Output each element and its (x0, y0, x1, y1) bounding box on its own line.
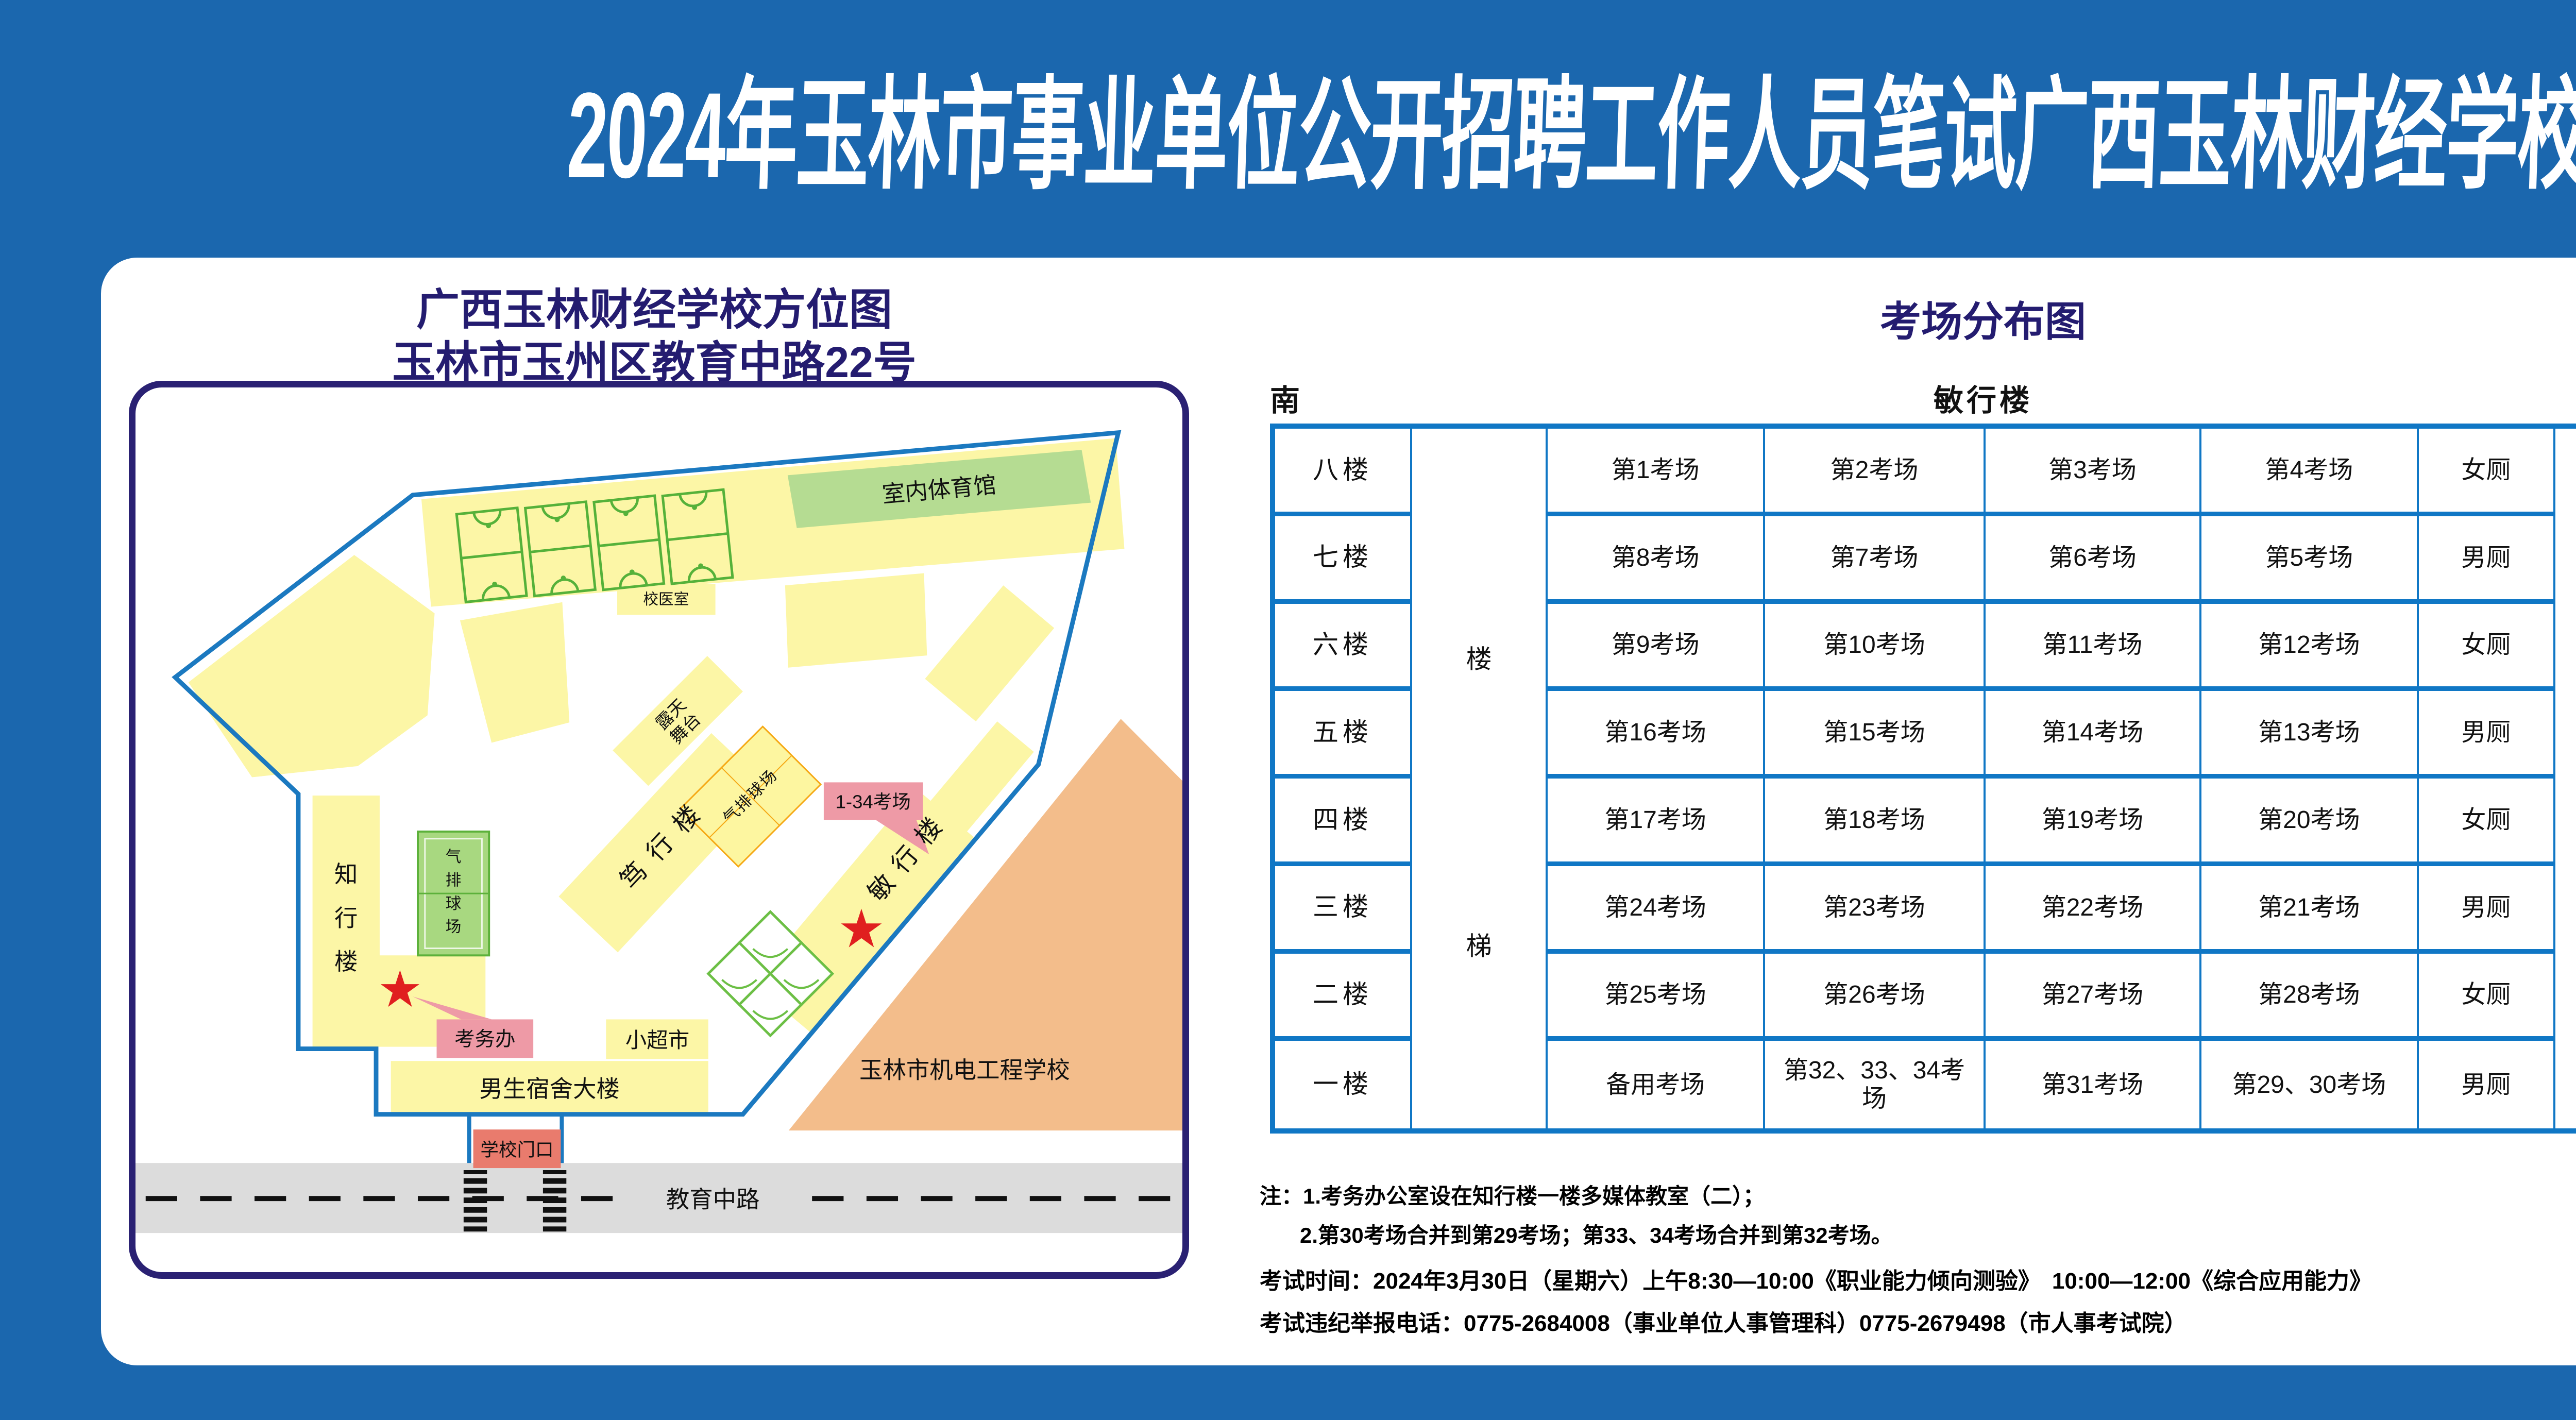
road-label: 教育中路 (666, 1187, 760, 1213)
toilet-cell: 男厕 (2419, 516, 2555, 604)
distribution-title: 考场分布图 (1270, 289, 2576, 348)
room-cell: 第20考场 (2201, 779, 2419, 866)
room-cell: 第17考场 (1548, 779, 1765, 866)
room-cell: 备用考场 (1548, 1041, 1765, 1128)
floor-cell: 一楼 (1275, 1041, 1412, 1128)
school-gate-label: 学校门口 (480, 1140, 553, 1160)
note-exam-time: 考试时间：2024年3月30日（星期六）上午8:30—10:00《职业能力倾向测… (1260, 1262, 2372, 1295)
campus-map: 室内体育馆 校医室 露天 舞台 笃行楼 气排球场 1-34考场 敏行楼 知行楼 … (135, 387, 1182, 1272)
zhixing-label: 知行楼 (334, 861, 358, 974)
room-cell: 第32、33、34考场 (1765, 1041, 1986, 1128)
zebra-crossing-right (543, 1170, 566, 1231)
road-band (135, 1163, 1182, 1233)
note-report-phone: 考试违纪举报电话：0775-2684008（事业单位人事管理科）0775-267… (1260, 1305, 2187, 1338)
toilet-cell: 男厕 (2419, 866, 2555, 954)
room-cell: 第18考场 (1765, 779, 1986, 866)
east-block-building-1 (785, 573, 927, 668)
supermarket-label: 小超市 (625, 1028, 689, 1052)
floor-cell: 七楼 (1275, 516, 1412, 604)
room-cell: 第19考场 (1986, 779, 2201, 866)
room-cell: 第6考场 (1986, 516, 2201, 604)
room-cell: 第11考场 (1986, 604, 2201, 691)
dorm-label: 男生宿舍大楼 (479, 1076, 619, 1102)
room-cell: 第21考场 (2201, 866, 2419, 954)
floor-cell: 四楼 (1275, 779, 1412, 866)
room-cell: 第25考场 (1548, 954, 1765, 1041)
zebra-crossing-left (464, 1170, 487, 1231)
floor-cell: 六楼 (1275, 604, 1412, 691)
room-cell: 第12考场 (2201, 604, 2419, 691)
room-cell: 第3考场 (1986, 429, 2201, 516)
toilet-cell: 女厕 (2419, 429, 2555, 516)
neighbor-school-label: 玉林市机电工程学校 (859, 1057, 1070, 1083)
room-cell: 第24考场 (1548, 866, 1765, 954)
room-cell: 第2考场 (1765, 429, 1986, 516)
toilet-cell: 女厕 (2419, 604, 2555, 691)
west-block-building (189, 555, 435, 777)
campus-map-frame: 室内体育馆 校医室 露天 舞台 笃行楼 气排球场 1-34考场 敏行楼 知行楼 … (129, 381, 1189, 1279)
room-cell: 第15考场 (1765, 691, 1986, 779)
room-cell: 第31考场 (1986, 1041, 2201, 1128)
room-cell: 第28考场 (2201, 954, 2419, 1041)
room-cell: 第16考场 (1548, 691, 1765, 779)
exam-office-label: 考务办 (454, 1028, 515, 1051)
floor-cell: 八楼 (1275, 429, 1412, 516)
room-cell: 第27考场 (1986, 954, 2201, 1041)
building-header: 敏行楼 (1270, 376, 2576, 419)
rooms-callout-label: 1-34考场 (836, 791, 911, 812)
room-cell: 第7考场 (1765, 516, 1986, 604)
stairs-left-cell: 楼梯 (1412, 429, 1548, 1128)
east-block-building-2 (925, 585, 1054, 721)
room-cell: 第22考场 (1986, 866, 2201, 954)
mid-block-building (460, 602, 569, 743)
room-cell: 第13考场 (2201, 691, 2419, 779)
room-cell: 第23考场 (1765, 866, 1986, 954)
exam-table: 八楼第1考场第2考场第3考场第4考场女厕七楼第8考场第7考场第6考场第5考场男厕… (1270, 424, 2576, 1134)
room-cell: 第4考场 (2201, 429, 2419, 516)
room-cell: 第14考场 (1986, 691, 2201, 779)
room-cell: 第29、30考场 (2201, 1041, 2419, 1128)
floor-cell: 二楼 (1275, 954, 1412, 1041)
room-cell: 第8考场 (1548, 516, 1765, 604)
toilet-cell: 男厕 (2419, 1041, 2555, 1128)
room-cell: 第26考场 (1765, 954, 1986, 1041)
stairs-right-cell: 楼梯 (2555, 429, 2576, 1128)
floor-cell: 三楼 (1275, 866, 1412, 954)
toilet-cell: 女厕 (2419, 779, 2555, 866)
room-cell: 第5考场 (2201, 516, 2419, 604)
floor-cell: 五楼 (1275, 691, 1412, 779)
room-cell: 第9考场 (1548, 604, 1765, 691)
note-line-1: 注：1.考务办公室设在知行楼一楼多媒体教室（二）； (1260, 1179, 1765, 1210)
page-title: 2024年玉林市事业单位公开招聘工作人员笔试广西玉林财经学校考点考场示意图 (565, 36, 2274, 212)
note-line-2: 2.第30考场合并到第29考场；第33、34考场合并到第32考场。 (1300, 1218, 1893, 1249)
room-cell: 第10考场 (1765, 604, 1986, 691)
clinic-label: 校医室 (643, 591, 689, 608)
room-cell: 第1考场 (1548, 429, 1765, 516)
toilet-cell: 女厕 (2419, 954, 2555, 1041)
toilet-cell: 男厕 (2419, 691, 2555, 779)
